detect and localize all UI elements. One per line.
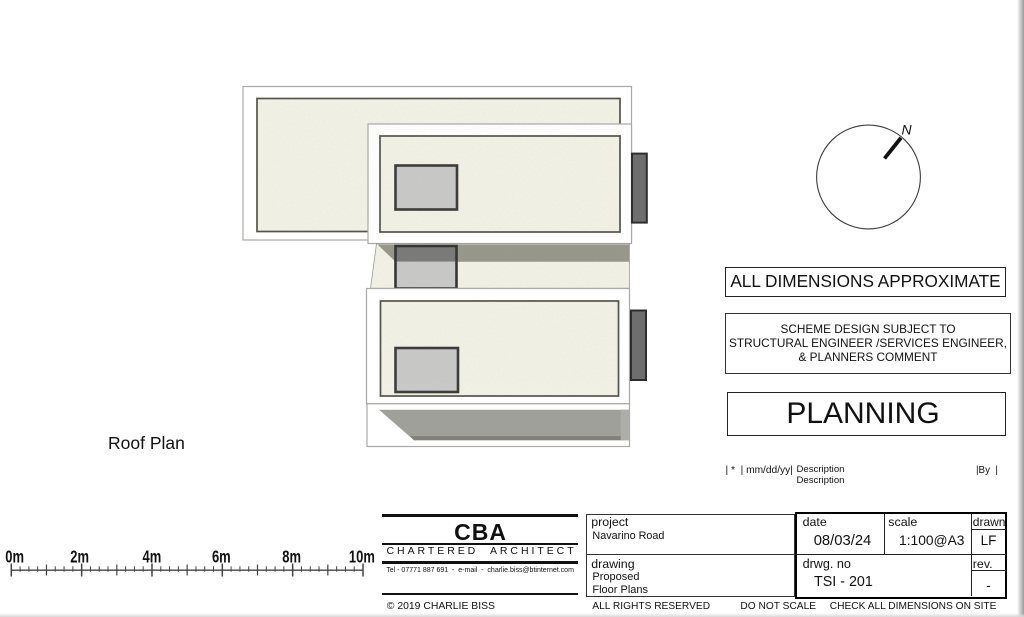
svg-text:4m: 4m — [143, 547, 162, 567]
svg-text:2m: 2m — [70, 547, 89, 567]
svg-text:10m: 10m — [349, 547, 375, 567]
svg-text:0m: 0m — [5, 547, 24, 567]
svg-text:8m: 8m — [282, 547, 301, 567]
svg-text:N: N — [902, 122, 913, 138]
svg-text:6m: 6m — [212, 547, 231, 567]
